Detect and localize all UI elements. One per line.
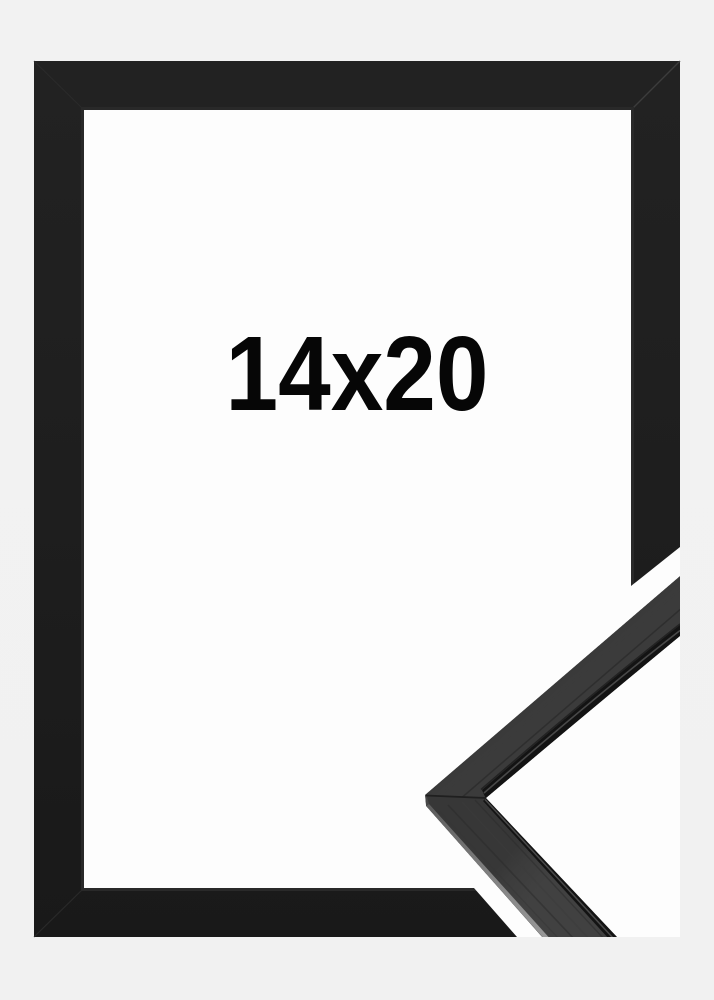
svg-text:14x20: 14x20 xyxy=(226,315,489,433)
